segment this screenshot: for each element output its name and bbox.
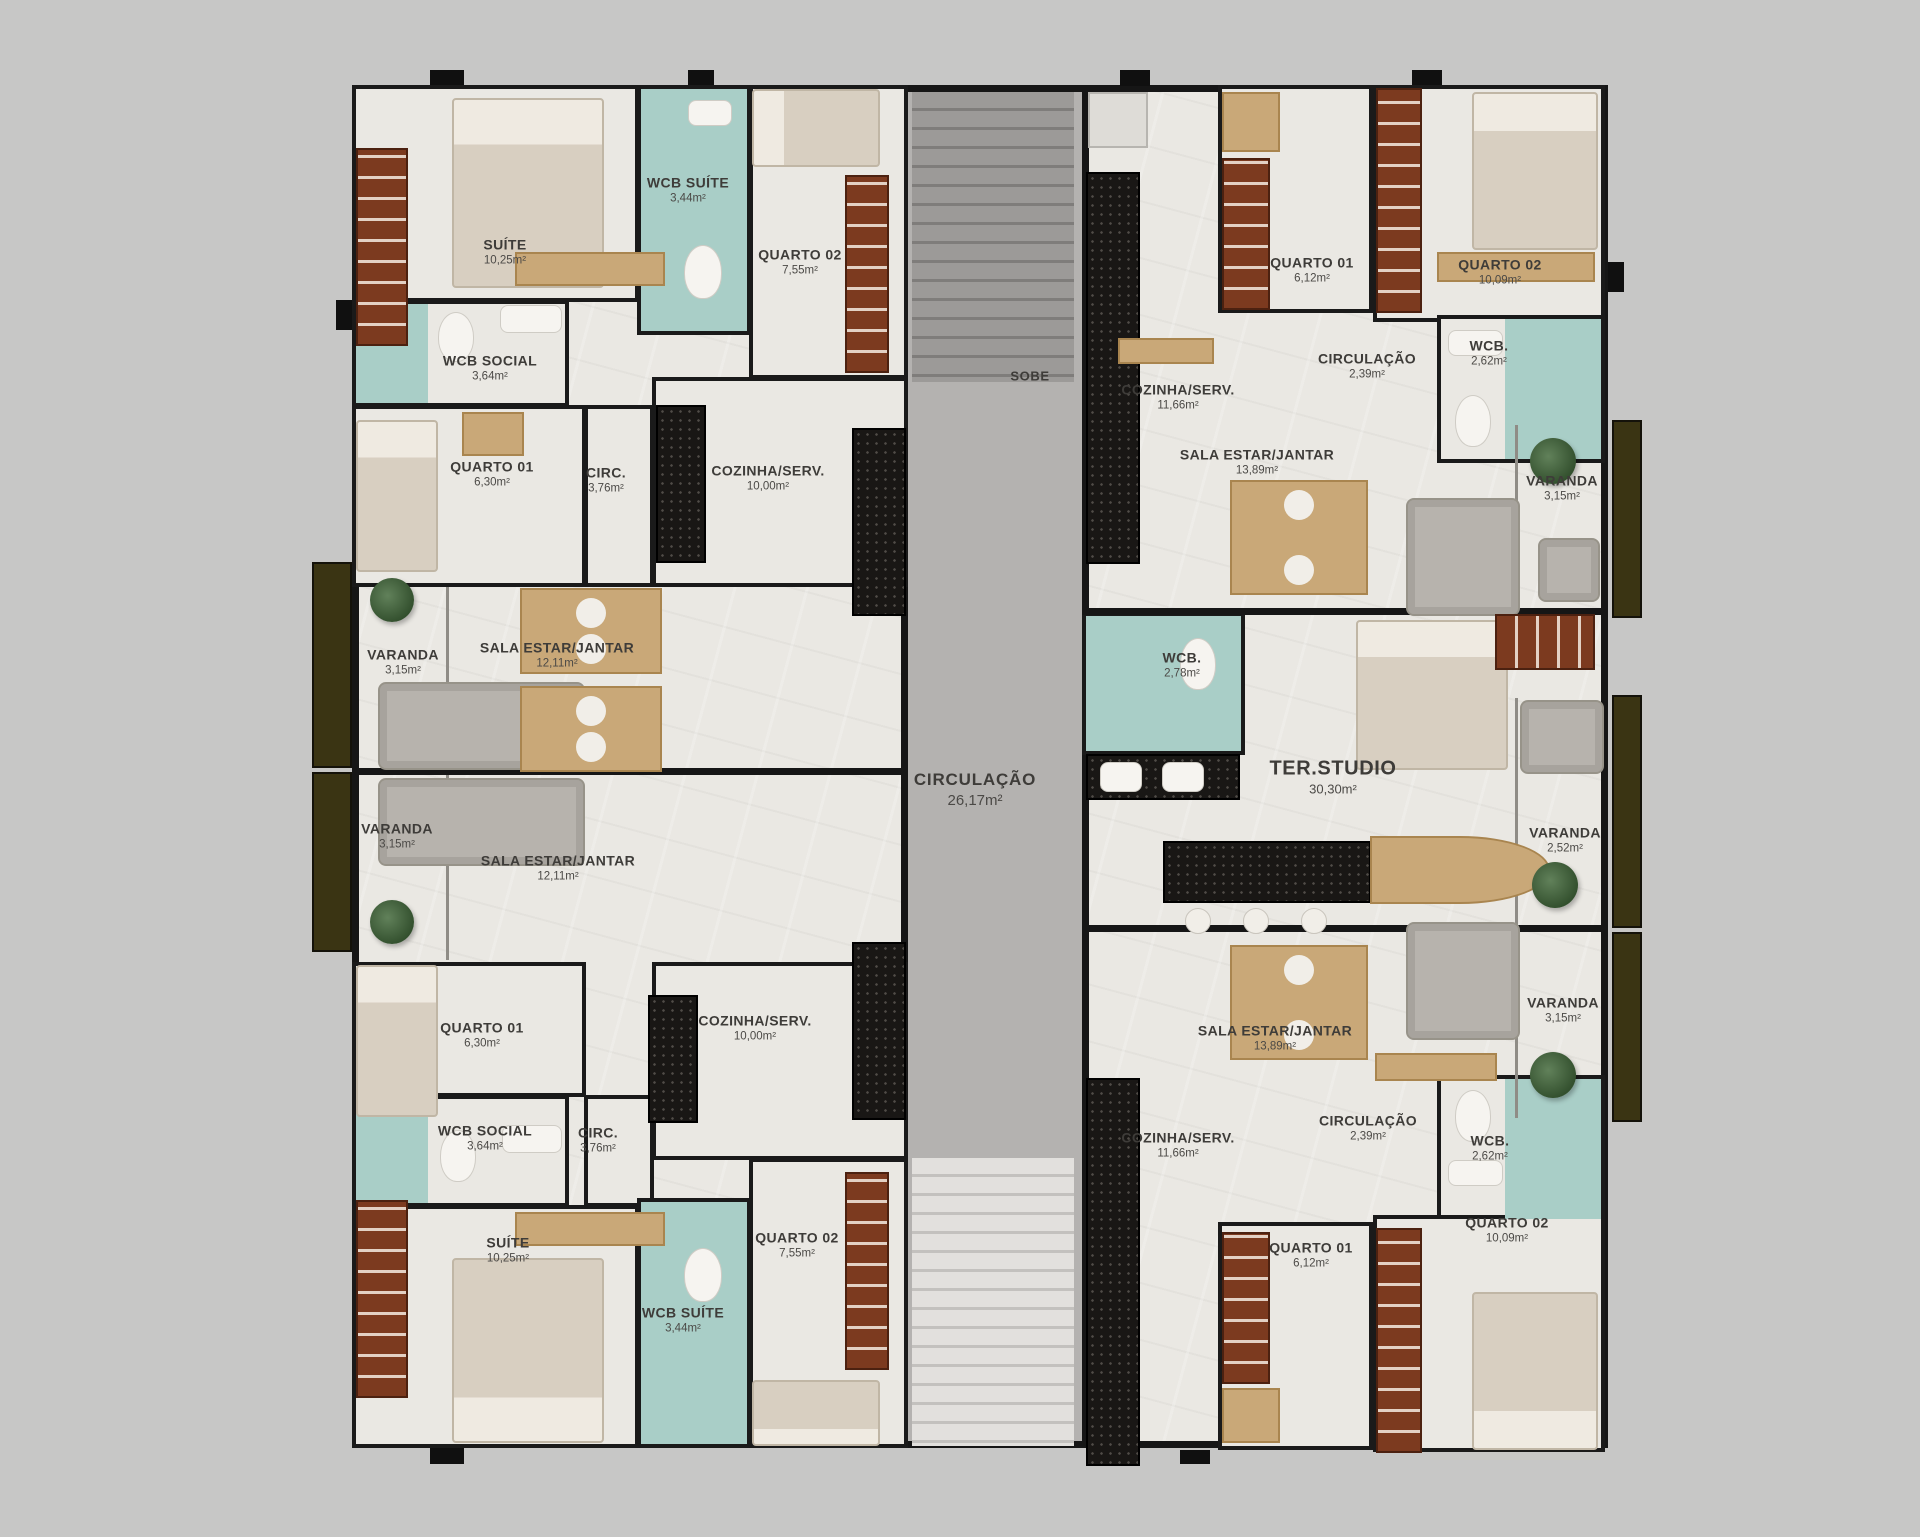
- room-label-ter-studio: TER.STUDIO30,30m²: [1269, 756, 1396, 799]
- room-label-circulacao-br: CIRCULAÇÃO2,39m²: [1319, 1111, 1417, 1144]
- staircase-lower: [912, 1158, 1074, 1446]
- room-label-quarto01-tl: QUARTO 016,30m²: [450, 457, 533, 490]
- room-label-cozinha-tr: COZINHA/SERV.11,66m²: [1121, 380, 1234, 413]
- sofa: [1406, 922, 1520, 1040]
- stool: [1243, 908, 1269, 934]
- room-label-wcb-suite-tl: WCB SUÍTE3,44m²: [647, 173, 729, 206]
- wall-stub: [688, 70, 714, 86]
- kitchen-island: [1163, 841, 1371, 903]
- wall-stub: [336, 300, 352, 330]
- room-label-cozinha-tl: COZINHA/SERV.10,00m²: [711, 461, 824, 494]
- sink: [1162, 762, 1204, 792]
- staircase-upper: [912, 92, 1074, 382]
- kitchen-counter: [648, 995, 698, 1123]
- desk: [1222, 1388, 1280, 1443]
- curved-desk: [1370, 836, 1550, 904]
- stool: [1301, 908, 1327, 934]
- desk: [1222, 92, 1280, 152]
- room-label-sala-tl: SALA ESTAR/JANTAR12,11m²: [480, 638, 634, 671]
- room-label-varanda-bl: VARANDA3,15m²: [361, 819, 433, 852]
- wardrobe: [845, 175, 889, 373]
- wall-stub: [1180, 1450, 1210, 1464]
- room-label-circulacao-tr: CIRCULAÇÃO2,39m²: [1318, 349, 1416, 382]
- balcony-planter: [1612, 932, 1642, 1122]
- wall-stub: [1608, 262, 1624, 292]
- room-label-sala-br: SALA ESTAR/JANTAR13,89m²: [1198, 1021, 1352, 1054]
- room-label-circulacao-central: CIRCULAÇÃO26,17m²: [914, 769, 1036, 811]
- plant: [370, 900, 414, 944]
- wardrobe: [356, 148, 408, 346]
- wardrobe: [356, 1200, 408, 1398]
- balcony-planter: [1612, 695, 1642, 928]
- room-label-quarto01-tr: QUARTO 016,12m²: [1270, 253, 1353, 286]
- room-label-wcb-studio: WCB.2,78m²: [1163, 648, 1202, 681]
- balcony-planter: [312, 772, 352, 952]
- toilet: [684, 245, 722, 299]
- room-label-wcb-suite-bl: WCB SUÍTE3,44m²: [642, 1303, 724, 1336]
- room-label-circ-tl: CIRC.3,76m²: [586, 463, 626, 496]
- sink: [1100, 762, 1142, 792]
- room-label-quarto02-tr: QUARTO 0210,09m²: [1458, 255, 1541, 288]
- plant: [370, 578, 414, 622]
- bed: [356, 965, 438, 1117]
- room-label-wcb-social-bl: WCB SOCIAL3,64m²: [438, 1121, 532, 1154]
- wardrobe: [1222, 1232, 1270, 1384]
- kitchen-island: [852, 942, 906, 1120]
- room-label-varanda-br: VARANDA3,15m²: [1527, 993, 1599, 1026]
- room-label-sala-bl: SALA ESTAR/JANTAR12,11m²: [481, 851, 635, 884]
- bed: [1472, 92, 1598, 250]
- wall-stub: [430, 70, 464, 86]
- wall-stub: [1412, 70, 1442, 86]
- stair-label-sobe: SOBE: [1010, 369, 1049, 386]
- bed: [1472, 1292, 1598, 1450]
- room-label-varanda-studio: VARANDA2,52m²: [1529, 823, 1601, 856]
- armchair: [1538, 538, 1600, 602]
- room-label-quarto02-br: QUARTO 0210,09m²: [1465, 1213, 1548, 1246]
- kitchen-counter: [1086, 172, 1140, 564]
- room-label-circ-bl: CIRC.3,76m²: [578, 1123, 618, 1156]
- bed: [452, 1258, 604, 1443]
- bed: [752, 89, 880, 167]
- kitchen-counter: [656, 405, 706, 563]
- dining-table: [520, 686, 662, 772]
- plant: [1530, 1052, 1576, 1098]
- room-label-quarto02-tl: QUARTO 027,55m²: [758, 245, 841, 278]
- dining-table: [1230, 480, 1368, 595]
- kitchen-island: [852, 428, 906, 616]
- wall-stub: [1120, 70, 1150, 86]
- sofa: [1520, 700, 1604, 774]
- toilet: [1455, 395, 1491, 447]
- bed: [1356, 620, 1508, 770]
- balcony-planter: [1612, 420, 1642, 618]
- wcb-studio-room: [1082, 612, 1245, 755]
- toilet: [684, 1248, 722, 1302]
- sink: [688, 100, 732, 126]
- sink: [500, 305, 562, 333]
- wardrobe: [1376, 1228, 1422, 1453]
- room-label-wcb-br: WCB.2,62m²: [1471, 1131, 1510, 1164]
- wardrobe: [1376, 88, 1422, 313]
- wall-stub: [430, 1448, 464, 1464]
- desk: [515, 252, 665, 286]
- room-label-varanda-tl: VARANDA3,15m²: [367, 645, 439, 678]
- stool: [1185, 908, 1211, 934]
- room-label-suite-bl: SUÍTE10,25m²: [486, 1233, 529, 1266]
- bed: [356, 420, 438, 572]
- desk: [462, 412, 524, 456]
- room-label-sala-tr: SALA ESTAR/JANTAR13,89m²: [1180, 445, 1334, 478]
- room-label-quarto01-br: QUARTO 016,12m²: [1269, 1238, 1352, 1271]
- plant: [1532, 862, 1578, 908]
- desk: [515, 1212, 665, 1246]
- room-label-cozinha-br: COZINHA/SERV.11,66m²: [1121, 1128, 1234, 1161]
- party-wall: [1082, 925, 1608, 932]
- room-label-varanda-tr: VARANDA3,15m²: [1526, 471, 1598, 504]
- sideboard: [1375, 1053, 1497, 1081]
- room-label-quarto01-bl: QUARTO 016,30m²: [440, 1018, 523, 1051]
- wardrobe: [845, 1172, 889, 1370]
- bed: [752, 1380, 880, 1446]
- room-label-wcb-tr: WCB.2,62m²: [1470, 336, 1509, 369]
- sideboard: [1118, 338, 1214, 364]
- room-label-wcb-social-tl: WCB SOCIAL3,64m²: [443, 351, 537, 384]
- shower-floor: [1505, 1079, 1601, 1219]
- appliance: [1088, 92, 1148, 148]
- floor-plan-canvas: SUÍTE10,25m² WCB SUÍTE3,44m² QUARTO 027,…: [0, 0, 1920, 1537]
- room-label-suite-tl: SUÍTE10,25m²: [483, 235, 526, 268]
- wardrobe: [1222, 158, 1270, 310]
- room-label-cozinha-bl: COZINHA/SERV.10,00m²: [698, 1011, 811, 1044]
- balcony-planter: [312, 562, 352, 768]
- wardrobe: [1495, 614, 1595, 670]
- room-label-quarto02-bl: QUARTO 027,55m²: [755, 1228, 838, 1261]
- sofa: [1406, 498, 1520, 616]
